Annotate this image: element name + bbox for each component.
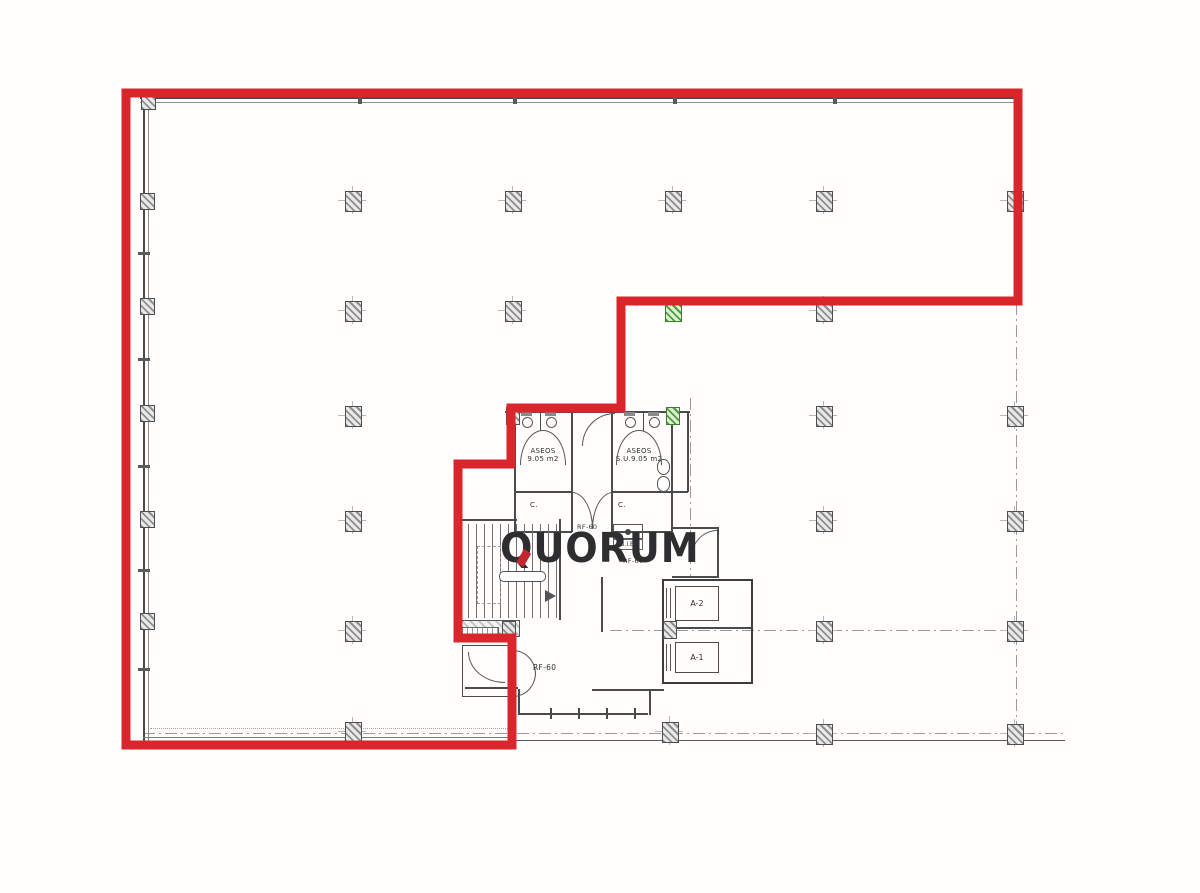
leased-area-outline bbox=[126, 93, 1018, 745]
quorum-logo: QUORUM bbox=[500, 526, 700, 570]
floor-plan-canvas: A-2 A-1 B.I.E. ASEOS 9.05 m2 ASEOS S.U.9… bbox=[0, 0, 1200, 893]
quorum-logo-text: QUORUM bbox=[500, 524, 700, 572]
leased-area-outline-layer bbox=[0, 0, 1200, 893]
